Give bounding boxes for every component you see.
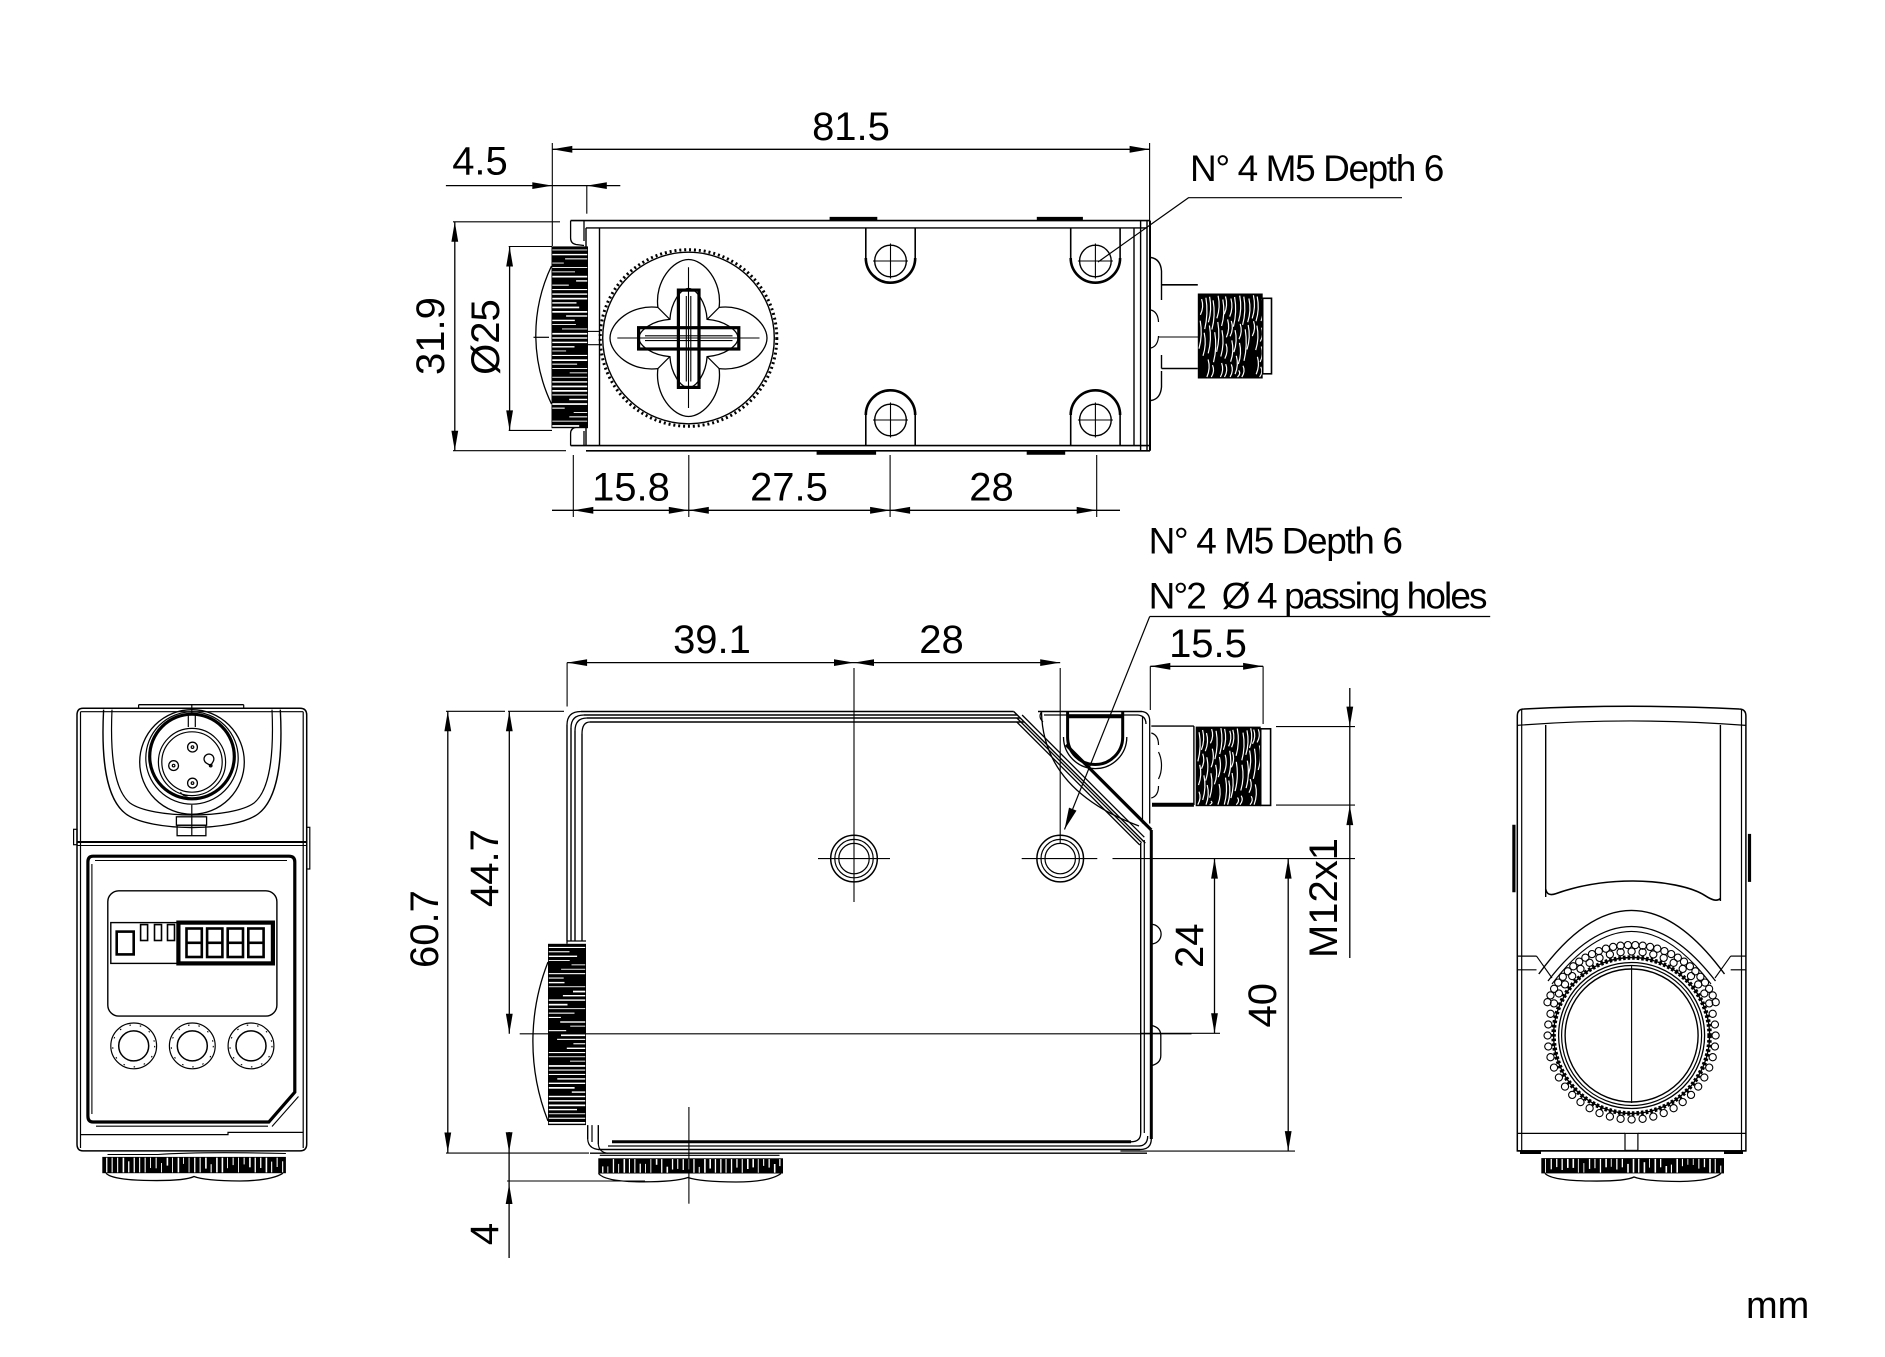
svg-text:4: 4: [463, 1223, 507, 1245]
svg-text:28: 28: [919, 618, 964, 662]
svg-text:N° 4 M5 Depth 6: N° 4 M5 Depth 6: [1149, 521, 1402, 562]
svg-text:24: 24: [1168, 923, 1212, 968]
svg-text:4.5: 4.5: [452, 140, 508, 184]
svg-text:M12x1: M12x1: [1302, 838, 1346, 958]
svg-text:40: 40: [1241, 983, 1285, 1028]
svg-text:15.8: 15.8: [592, 466, 670, 510]
svg-text:39.1: 39.1: [673, 618, 751, 662]
svg-text:N° 4 M5 Depth 6: N° 4 M5 Depth 6: [1190, 148, 1443, 189]
svg-text:N°2 Ø 4 passing holes: N°2 Ø 4 passing holes: [1149, 576, 1487, 617]
svg-text:27.5: 27.5: [750, 466, 828, 510]
svg-text:28: 28: [969, 466, 1014, 510]
svg-text:15.5: 15.5: [1169, 622, 1247, 666]
svg-text:mm: mm: [1746, 1285, 1809, 1327]
svg-text:81.5: 81.5: [812, 105, 890, 149]
svg-text:31.9: 31.9: [409, 297, 453, 375]
svg-text:44.7: 44.7: [463, 829, 507, 907]
svg-text:Ø25: Ø25: [464, 299, 508, 375]
svg-text:60.7: 60.7: [403, 890, 447, 968]
